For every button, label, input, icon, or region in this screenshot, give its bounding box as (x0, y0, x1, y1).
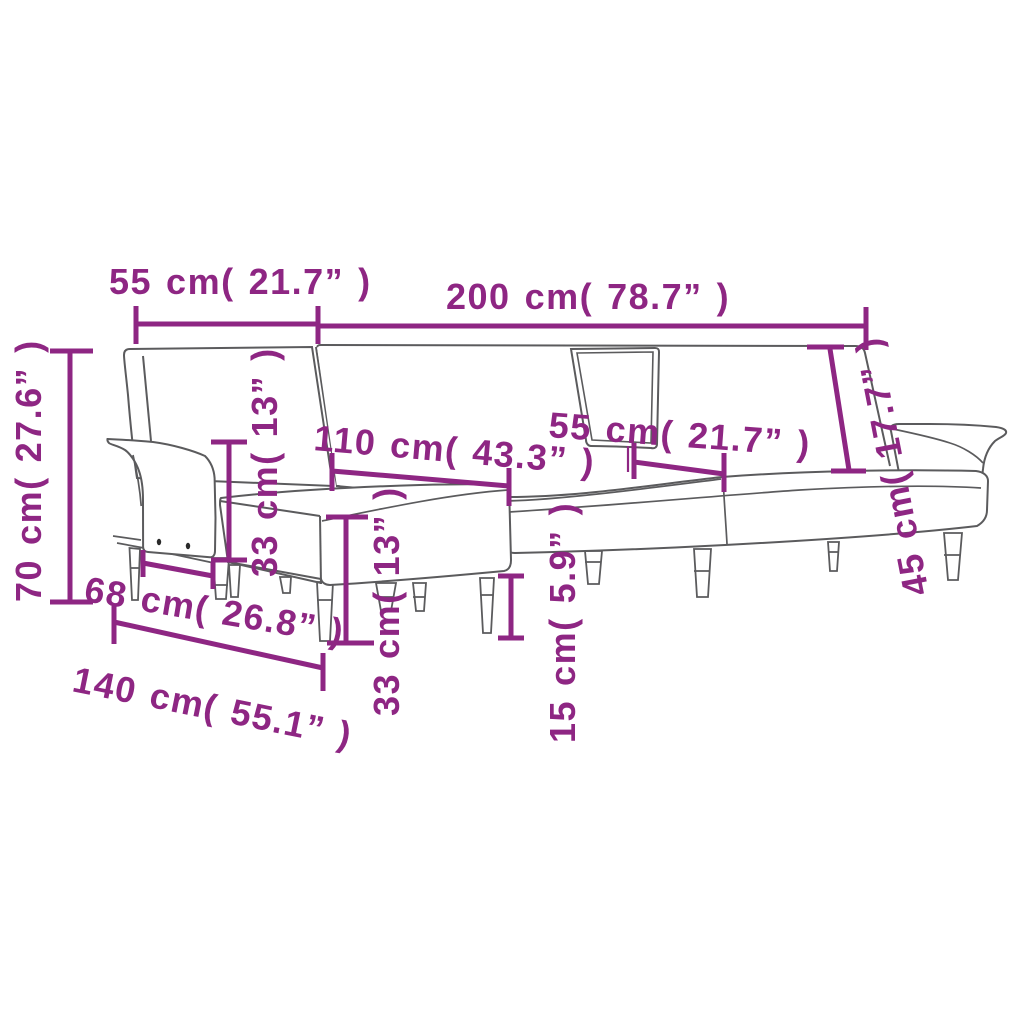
svg-text:55 cm( 21.7” ): 55 cm( 21.7” ) (109, 261, 372, 302)
svg-text:15 cm( 5.9” ): 15 cm( 5.9” ) (542, 502, 583, 743)
svg-text:70 cm( 27.6” ): 70 cm( 27.6” ) (8, 339, 49, 602)
svg-text:33 cm( 13” ): 33 cm( 13” ) (244, 347, 285, 577)
svg-text:33 cm( 13” ): 33 cm( 13” ) (366, 486, 407, 716)
svg-text:140 cm( 55.1” ): 140 cm( 55.1” ) (69, 659, 356, 756)
svg-text:200 cm( 78.7” ): 200 cm( 78.7” ) (446, 276, 730, 317)
